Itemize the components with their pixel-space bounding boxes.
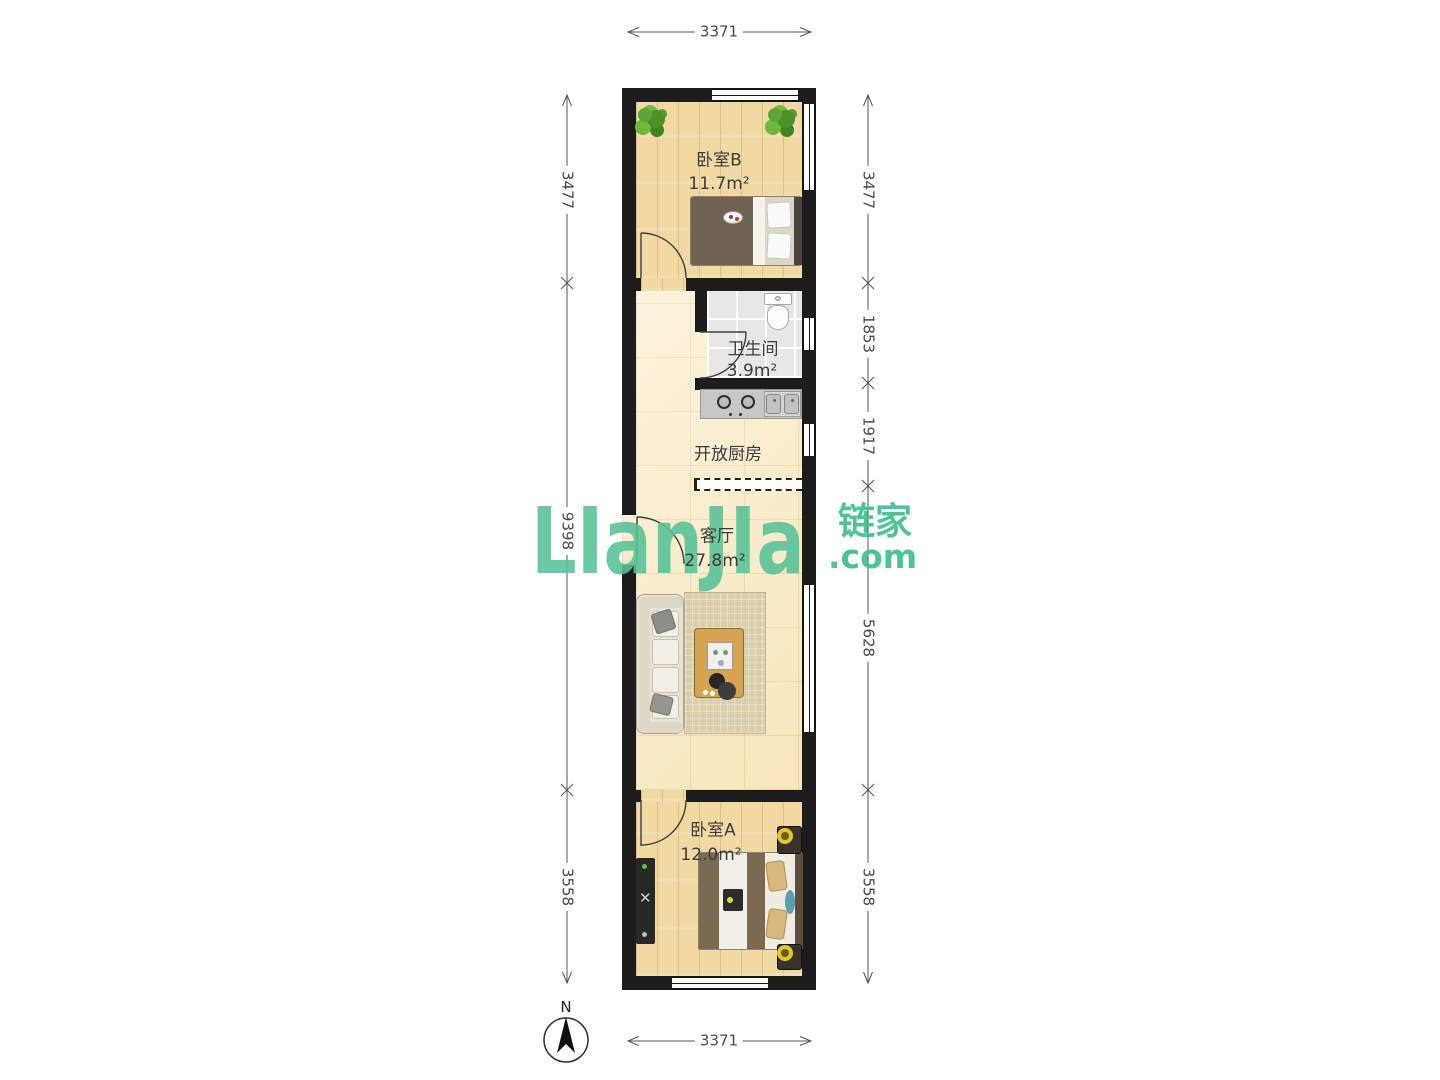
plant-icon [768, 108, 782, 122]
bathroom-left-wall [695, 291, 707, 332]
lianjia-watermark-cn: 链家 [838, 503, 912, 540]
stove-burner [741, 395, 755, 409]
compass-north-label: N [560, 998, 571, 1016]
sofa-back [639, 601, 650, 727]
sofa-cushion [652, 639, 679, 665]
coffee-table [694, 628, 744, 698]
toilet [764, 293, 792, 331]
tray-item [713, 650, 718, 655]
dim-right-2: 1853 [859, 310, 876, 358]
tv-stand-item [642, 932, 647, 937]
sink-basin [784, 394, 799, 414]
bedroom-a-area: 12.0m² [680, 845, 741, 865]
bed-accent-pillow [785, 890, 795, 914]
dim-left-3: 3558 [558, 863, 575, 911]
lamp-icon [777, 828, 793, 844]
compass-icon [544, 1017, 588, 1062]
nightstand [777, 944, 802, 970]
bed-pillow [766, 232, 791, 259]
dim-bottom: 3371 [695, 1032, 743, 1049]
dim-right-5: 3558 [859, 863, 876, 911]
bedroom-b-side-window [802, 104, 816, 190]
sofa-armrest [639, 597, 683, 608]
table-tray [707, 642, 733, 670]
bed-pillow [765, 860, 788, 892]
stove-burner [717, 395, 731, 409]
lamp-icon [777, 945, 793, 961]
bedroom-b-label: 卧室B [696, 146, 742, 171]
tv-stand-x: ✕ [639, 891, 652, 906]
toilet-bowl [767, 305, 789, 330]
plant-icon [638, 108, 652, 122]
kitchen-sink [764, 391, 801, 417]
open-kitchen-label: 开放厨房 [694, 440, 762, 465]
lianjia-watermark-domain: .com [828, 540, 917, 573]
tray-item [723, 650, 728, 655]
bed-pillow [766, 201, 791, 228]
sofa-cushion [652, 667, 679, 693]
bathroom-area: 3.9m² [727, 361, 777, 381]
bed-tray [723, 211, 743, 224]
tray-dot [729, 215, 733, 219]
tv-stand: ✕ [636, 858, 655, 944]
bedroom-b-door-gap [641, 278, 686, 291]
bed-blanket [691, 197, 753, 265]
living-room-area: 27.8m² [684, 551, 745, 571]
table-bowl [718, 682, 736, 700]
tablet-dot [727, 897, 733, 903]
bedroom-a-bed [698, 852, 802, 950]
living-room-label: 客厅 [700, 522, 734, 547]
tray-item [718, 660, 724, 666]
sofa-armrest [639, 722, 683, 733]
dim-right-1: 3477 [859, 166, 876, 214]
sink-basin [766, 394, 781, 414]
drain-dot [773, 399, 776, 402]
dim-right-4: 5628 [859, 614, 876, 662]
nightstand [777, 826, 802, 854]
tv-stand-plant [642, 864, 647, 869]
bed-tablet [723, 889, 743, 911]
toilet-button [775, 296, 781, 301]
stove-knob [739, 413, 742, 416]
dim-top: 3371 [695, 23, 743, 40]
bedroom-b-area: 11.7m² [688, 174, 749, 194]
dim-right-3: 1917 [859, 412, 876, 460]
floor-plan-canvas: ✕ [0, 0, 1440, 1080]
bedroom-b-bed [690, 196, 802, 266]
bathroom-label: 卫生间 [728, 335, 779, 360]
bed-sheet [753, 197, 765, 265]
kitchen-counter [700, 389, 802, 419]
bed-headboard [794, 197, 802, 265]
bed-pillow [765, 908, 788, 940]
dim-left-1: 3477 [558, 166, 575, 214]
bedroom-a-label: 卧室A [690, 816, 736, 841]
bed-headboard [795, 853, 803, 949]
kitchen-window [802, 424, 816, 456]
bedroom-b-top-window [712, 88, 798, 102]
tray-dot [735, 217, 739, 221]
stove-knob [729, 413, 732, 416]
drain-dot [791, 399, 794, 402]
dim-left-2: 9398 [558, 507, 575, 555]
bedroom-a-door-gap [641, 790, 686, 802]
table-cup [703, 690, 708, 695]
bedroom-a-bottom-window [672, 976, 768, 990]
table-cup [710, 691, 715, 696]
bathroom-window [802, 318, 816, 350]
living-room-window [802, 585, 816, 732]
sofa [636, 594, 684, 734]
